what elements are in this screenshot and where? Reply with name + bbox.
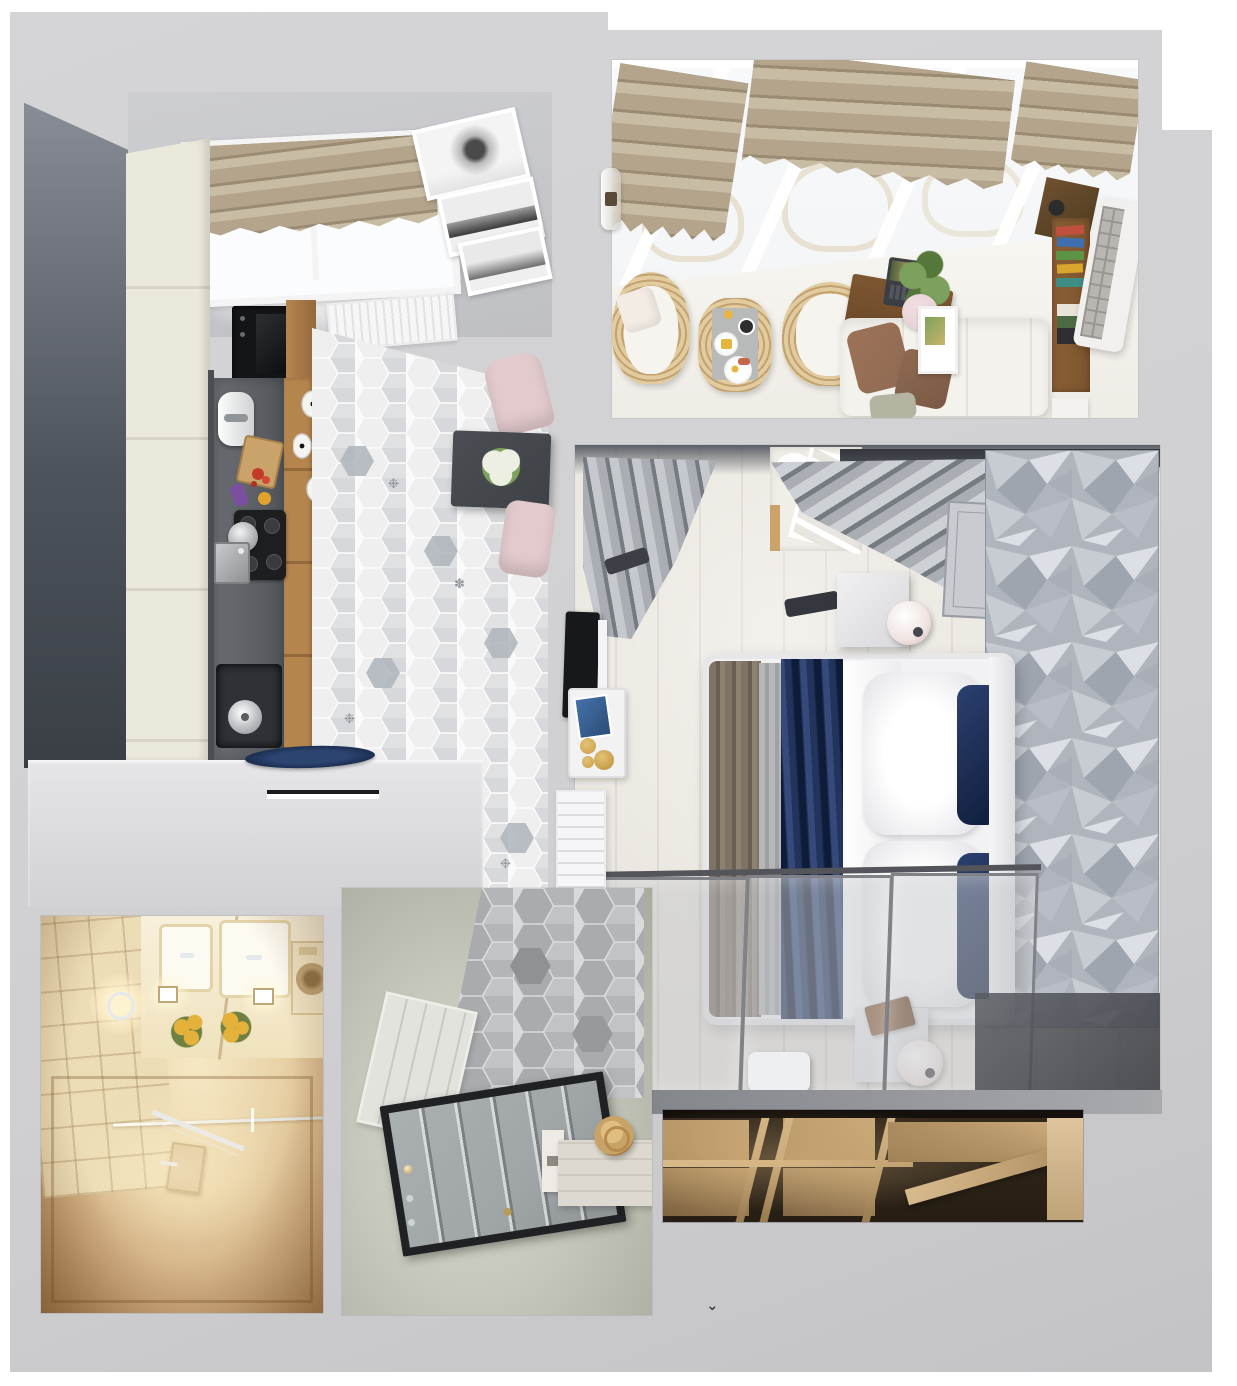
window-roman-shade (186, 134, 439, 241)
bathroom-room (41, 916, 323, 1313)
cream-cabinet-run (126, 138, 210, 762)
oven-knob (240, 316, 245, 321)
kitchen-left-wall (24, 96, 128, 768)
book (1056, 251, 1084, 260)
bacon (738, 358, 750, 365)
burner (266, 554, 282, 570)
bathroom-vignette (41, 916, 323, 1313)
oven-glass (256, 314, 288, 374)
pillow-sage (869, 392, 917, 418)
dining-chair-bottom (497, 499, 557, 579)
gallery-frame (918, 306, 958, 374)
wicker-armchair-1 (612, 272, 690, 384)
frame-art (925, 317, 945, 345)
door-pull-face (267, 794, 379, 799)
coffee-machine-band (224, 414, 248, 422)
balcony-wall-sconce (601, 168, 621, 230)
plate-eggs (724, 356, 752, 384)
hat-band (604, 1126, 630, 1152)
plate-toast (714, 332, 738, 356)
book (1057, 263, 1083, 273)
floor-plan-canvas: ❉✽❉ ✽❉ (0, 0, 1237, 1386)
oven-knob (240, 332, 245, 337)
book (1057, 237, 1084, 247)
wardrobe-glow (663, 1110, 1083, 1222)
svg-text:❉: ❉ (344, 712, 355, 727)
red-pepper (252, 468, 264, 480)
dressing-bench (748, 1052, 810, 1092)
pot-lid-knob (241, 713, 249, 721)
storage-box (1052, 398, 1088, 418)
under-sink-unit (216, 664, 282, 748)
magazine (573, 694, 613, 740)
book (1056, 225, 1085, 236)
hallway-room (342, 888, 652, 1315)
lamp-finial (913, 627, 923, 637)
decor-tray (568, 688, 626, 778)
steel-stockpot (228, 700, 262, 734)
kitchen-sink (214, 542, 250, 584)
artifact-glyph: ⌄ (706, 1296, 719, 1314)
sconce-bracket (605, 192, 617, 206)
bedroom-room (575, 445, 1160, 1100)
brass-dish-3 (582, 756, 594, 768)
balcony-room (612, 60, 1138, 418)
cot-wood-edge (770, 505, 780, 551)
corner-shadow (975, 993, 1160, 1100)
dining-table (451, 430, 552, 509)
fried-egg (730, 364, 740, 374)
coffee-cup (738, 318, 755, 335)
brass-dish-2 (594, 750, 614, 770)
hallway-hex-floor (452, 888, 644, 1098)
svg-text:✽: ✽ (454, 577, 465, 592)
sconce-shade (1047, 198, 1066, 217)
wicker-coffee-table (698, 298, 772, 392)
yellow-pepper (258, 492, 271, 505)
straw-hat (594, 1116, 634, 1156)
faucet (238, 548, 244, 554)
table-lamp-top (887, 601, 931, 645)
juice-glass (724, 310, 733, 319)
toast (721, 339, 732, 349)
wardrobe-cutaway (663, 1110, 1083, 1222)
kitchen-peninsula (28, 760, 483, 906)
book (1056, 278, 1084, 287)
burner (264, 518, 280, 534)
svg-text:❉: ❉ (500, 857, 511, 872)
breakfast-tray (712, 308, 758, 380)
svg-text:❉: ❉ (388, 477, 399, 492)
brass-dish-1 (580, 738, 596, 754)
flower-bouquet (477, 445, 524, 489)
